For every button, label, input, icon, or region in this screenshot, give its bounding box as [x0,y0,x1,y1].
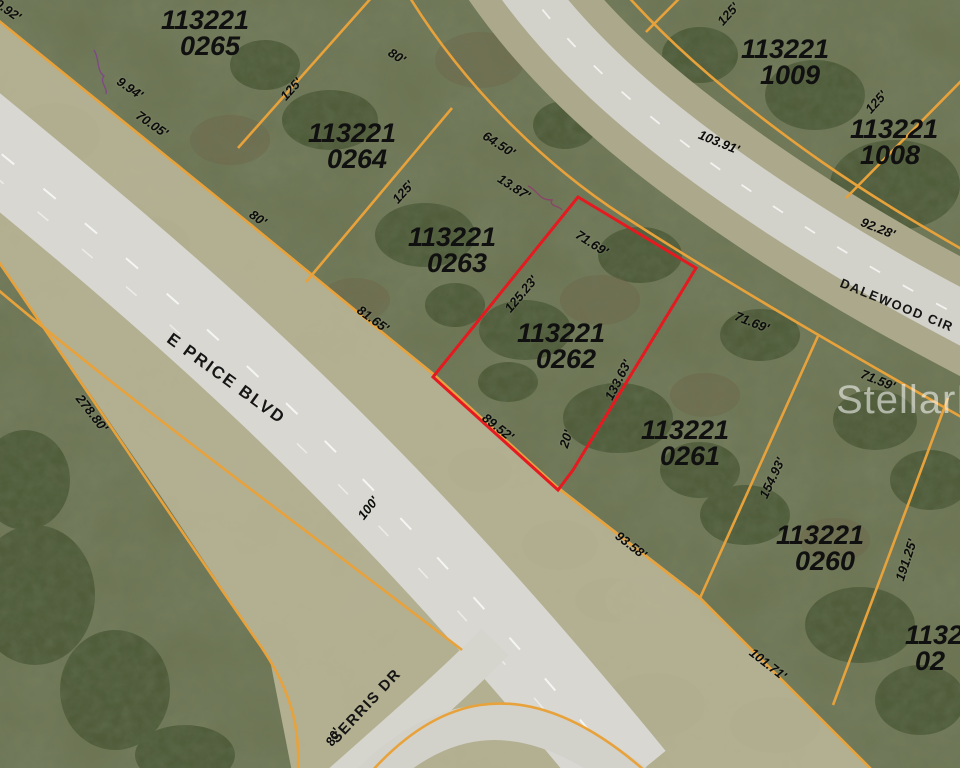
parcel-id-113221-1008: 113221 1008 [850,116,938,168]
parcel-id-113221-0260: 113221 0260 [776,522,864,574]
map-canvas[interactable]: 113221 0265 113221 0264 113221 0263 1132… [0,0,960,768]
parcel-id-113221-02-partial: 113221 02 [905,622,960,674]
mls-watermark: StellarMLS [836,378,960,423]
parcel-id-113221-1009: 113221 1009 [741,36,829,88]
parcel-id-113221-0263: 113221 0263 [408,224,496,276]
parcel-id-113221-0265: 113221 0265 [161,7,249,59]
parcel-id-113221-0261: 113221 0261 [641,417,729,469]
parcel-id-113221-0262-highlighted: 113221 0262 [517,320,605,372]
parcel-id-113221-0264: 113221 0264 [308,120,396,172]
